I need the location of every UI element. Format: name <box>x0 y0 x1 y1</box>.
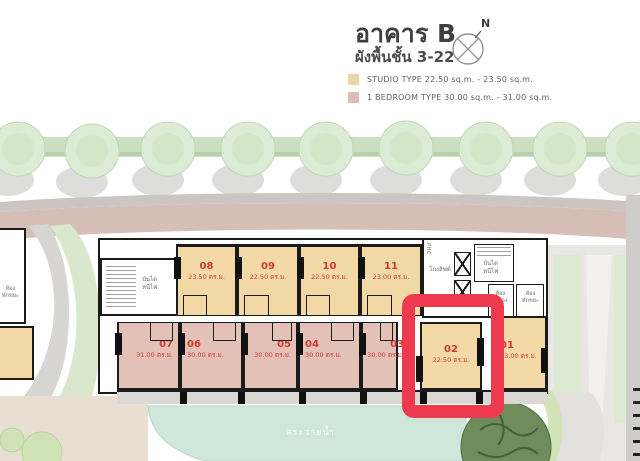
unit-area: 22.50 ตร.ม. <box>311 273 348 281</box>
compass-icon <box>448 28 488 68</box>
legend-item-1bedroom: 1 BEDROOM TYPE 30.00 sq.m. - 31.00 sq.m. <box>348 92 552 103</box>
unit-area: 30.00 ตร.ม. <box>305 351 342 359</box>
lift-shaft-1 <box>454 252 471 276</box>
west-fire-stairs-room: บันได หนีไฟ <box>100 258 178 316</box>
wall-column <box>541 348 547 373</box>
balcony-post <box>238 392 245 404</box>
unit-number: 05 <box>277 339 291 351</box>
unit-area: 22.50 ตร.ม. <box>250 273 287 281</box>
unit-area: 23.00 ตร.ม. <box>500 352 545 360</box>
balcony-post <box>180 392 187 404</box>
unit-09: 09 22.50 ตร.ม. <box>237 244 299 316</box>
legend: STUDIO TYPE 22.50 sq.m. - 23.50 sq.m. 1 … <box>348 74 552 110</box>
balcony-post <box>360 392 367 404</box>
fire-stairs-label-core: บันได หนีไฟ <box>483 260 498 275</box>
core-fire-stairs-room: บันได หนีไฟ <box>474 244 514 282</box>
unit-number: 04 <box>305 339 319 351</box>
unit-07: 07 31.00 ตร.ม. <box>117 322 180 390</box>
legend-label-1bedroom: 1 BEDROOM TYPE 30.00 sq.m. - 31.00 sq.m. <box>367 93 552 102</box>
trash-room-label-left: ห้อง พักขยะ <box>2 286 19 300</box>
unit-area: 31.00 ตร.ม. <box>136 351 173 359</box>
unit-04: 04 30.00 ตร.ม. <box>298 322 361 390</box>
unit-area: 30.00 ตร.ม. <box>367 351 404 359</box>
compass-north-label: N <box>481 17 490 30</box>
unit-number: 11 <box>384 261 398 273</box>
unit-area: 30.00 ตร.ม. <box>254 351 291 359</box>
tree-row <box>0 121 640 178</box>
floor-range-subtitle: ผังพื้นชั้น 3-22 <box>355 45 454 69</box>
unit-area: 23.00 ตร.ม. <box>373 273 410 281</box>
unit-number: 08 <box>200 261 214 273</box>
studio-color-swatch <box>348 74 359 85</box>
unit-08: 08 23.50 ตร.ม. <box>176 244 237 316</box>
unit-number: 01 <box>500 340 545 352</box>
stair-hatch <box>106 264 136 310</box>
trash-room-label: ห้อง พักขยะ <box>522 291 539 305</box>
legend-item-studio: STUDIO TYPE 22.50 sq.m. - 23.50 sq.m. <box>348 74 552 85</box>
pool-label: สระว่ายน้ำ <box>286 425 335 439</box>
floorplan-page: อาคาร B ผังพื้นชั้น 3-22 N STUDIO TYPE 2… <box>0 0 640 461</box>
bottom-left-landscape <box>0 396 148 461</box>
highlight-box-unit-02 <box>402 294 504 418</box>
unit-number: 09 <box>261 261 275 273</box>
lift-hall-label: โถงลิฟต์ <box>427 266 453 274</box>
unit-area: 23.50 ตร.ม. <box>188 273 225 281</box>
unit-number: 07 <box>159 339 173 351</box>
trash-room: ห้อง พักขยะ <box>516 284 544 317</box>
one-bedroom-color-swatch <box>348 92 359 103</box>
unit-03: 03 30.00 ตร.ม. <box>361 322 398 390</box>
legend-label-studio: STUDIO TYPE 22.50 sq.m. - 23.50 sq.m. <box>367 75 533 84</box>
unit-05: 05 30.00 ตร.ม. <box>243 322 298 390</box>
unit-area: 30.00 ตร.ม. <box>187 351 224 359</box>
fire-stairs-label-west: บันได หนีไฟ <box>142 276 157 291</box>
unit-10: 10 22.50 ตร.ม. <box>299 244 360 316</box>
stair-hatch <box>477 247 511 259</box>
unit-06: 06 30.00 ตร.ม. <box>180 322 243 390</box>
road <box>0 193 640 240</box>
balcony-post <box>299 392 306 404</box>
unit-number: 06 <box>187 339 201 351</box>
unit-number: 10 <box>323 261 337 273</box>
adjacent-building-rooms: ห้อง พักขยะ <box>0 228 26 324</box>
adjacent-building-unit <box>0 326 34 380</box>
phc-label: PHC <box>425 243 431 255</box>
